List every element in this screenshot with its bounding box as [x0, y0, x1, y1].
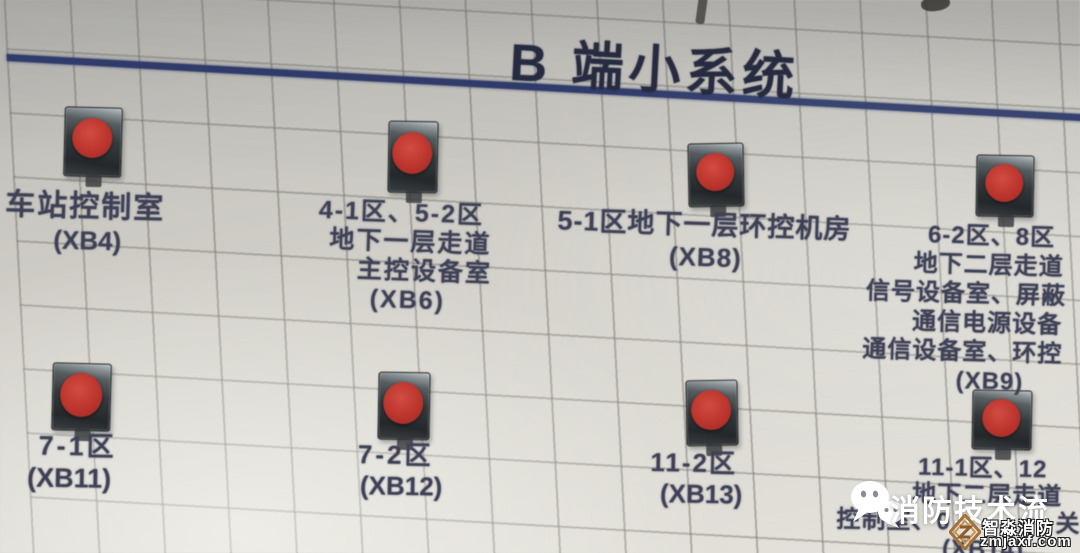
red-button-cap	[696, 152, 735, 191]
red-button-cap	[985, 164, 1024, 203]
push-button-xb4	[63, 106, 123, 177]
push-button-xb12	[377, 372, 430, 441]
label-line: 车站控制室	[0, 179, 172, 228]
brand-logo-icon	[949, 514, 981, 550]
label-xb9: 6-2区、8区 地下二层走道 信号设备室、屏蔽 通信电源设备 通信设备室、环控 …	[843, 218, 1080, 398]
push-button-xb14	[971, 389, 1032, 450]
push-button-xb13	[685, 380, 738, 447]
push-button-xb6	[387, 121, 438, 194]
red-button-cap	[392, 131, 433, 174]
panel-photo: B 端小系统 车站控制室 (XB4) 4-1区、5-2区 地下一层走道 主控设备…	[0, 0, 1080, 553]
label-xb13: 11-2区 (XB13)	[647, 447, 752, 511]
label-line: 7-1区	[9, 429, 146, 463]
label-xb4: 车站控制室 (XB4)	[0, 179, 172, 259]
label-line: 7-2区	[339, 439, 452, 472]
label-line: (XB11)	[1, 461, 138, 495]
label-line: 11-2区	[641, 447, 746, 480]
red-button-cap	[383, 382, 424, 425]
push-button-xb8	[687, 143, 744, 208]
label-xb6: 4-1区、5-2区 地下一层走道 主控设备室 (XB6)	[289, 195, 511, 319]
label-xb8: 5-1区地下一层环控机房 (XB8)	[542, 204, 866, 278]
red-button-cap	[982, 399, 1021, 438]
photo-layer: B 端小系统 车站控制室 (XB4) 4-1区、5-2区 地下一层走道 主控设备…	[0, 0, 1080, 553]
label-line: (XB12)	[345, 470, 458, 503]
red-button-cap	[59, 373, 102, 418]
label-xb12: 7-2区 (XB12)	[347, 439, 460, 503]
label-line: (XB13)	[649, 478, 754, 511]
label-xb11: 7-1区 (XB11)	[1, 429, 138, 495]
red-button-cap	[691, 390, 732, 431]
push-button-xb11	[51, 362, 112, 432]
brand-logo-site: zmjaxf.com	[980, 533, 1072, 550]
label-line: (XB4)	[1, 223, 174, 259]
red-button-cap	[72, 117, 113, 158]
panel-title: B 端小系统	[508, 20, 802, 110]
push-button-xb9	[975, 154, 1034, 217]
